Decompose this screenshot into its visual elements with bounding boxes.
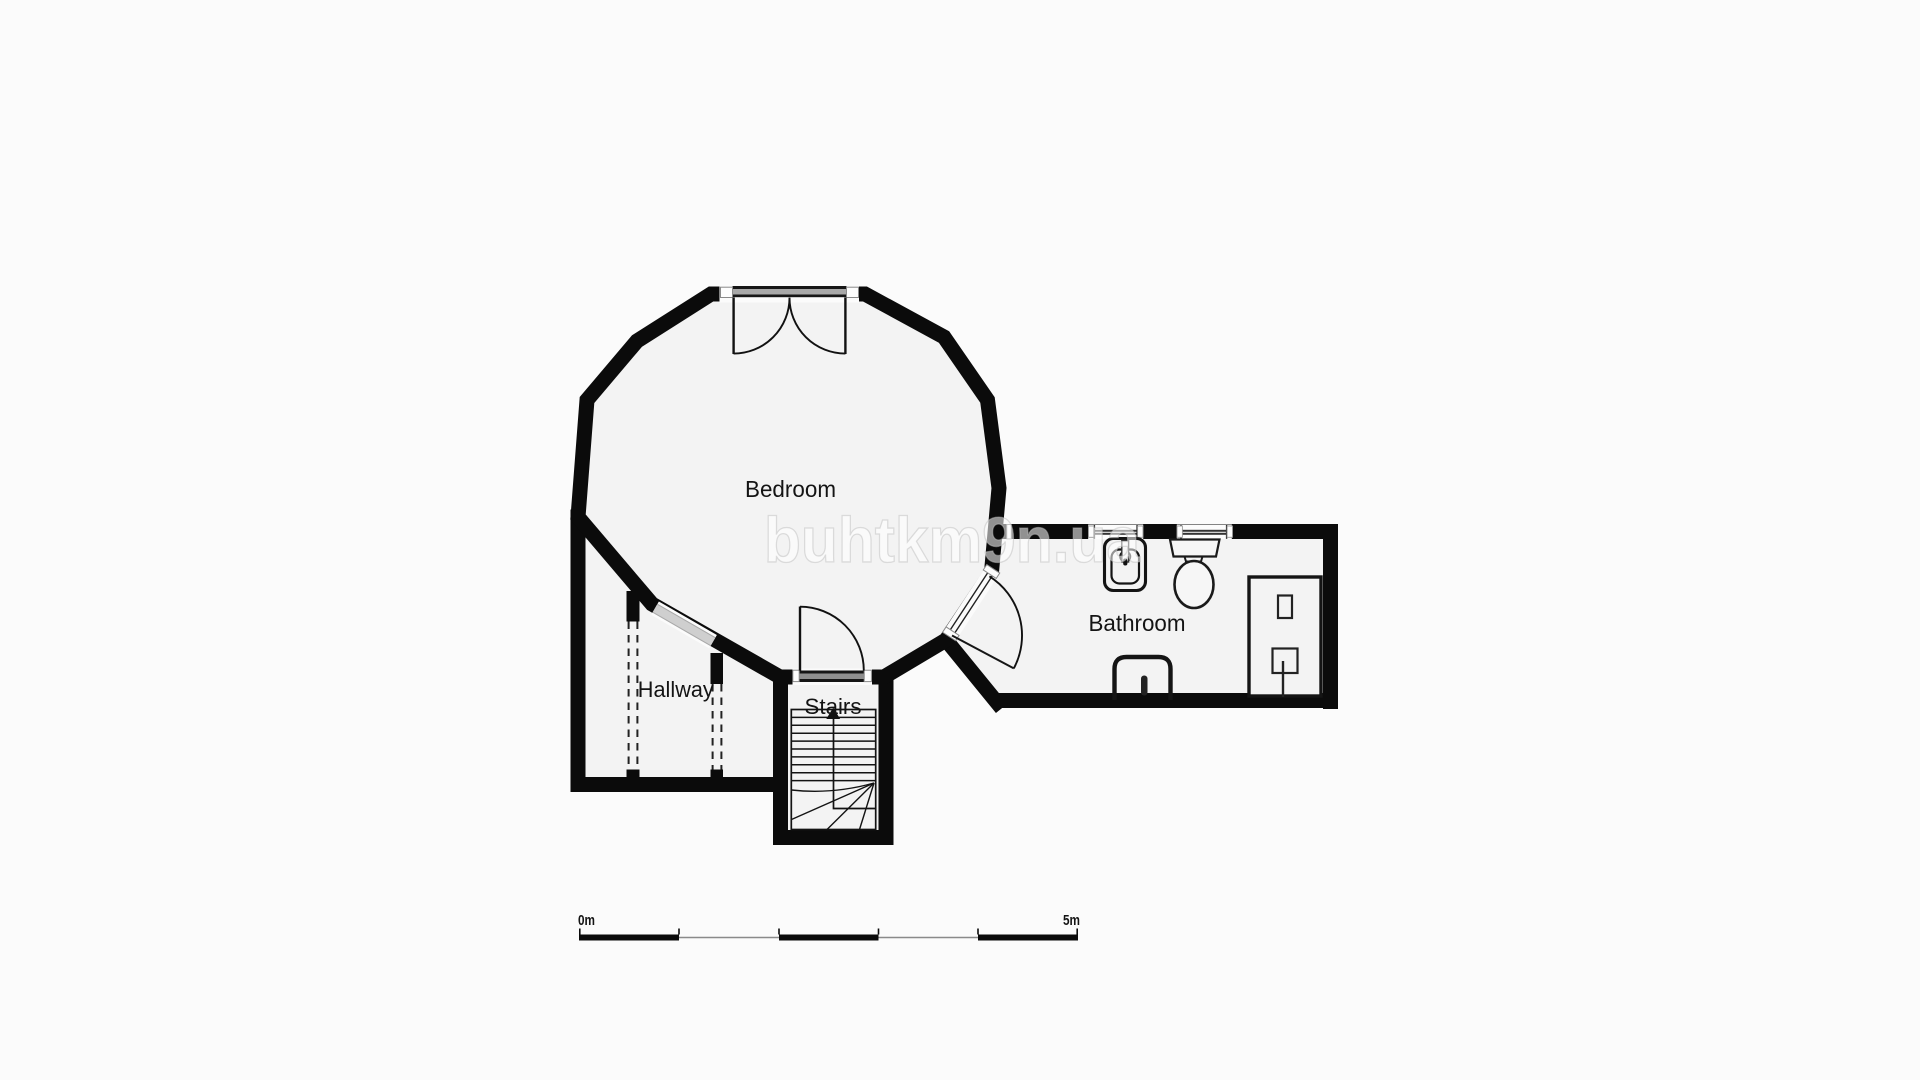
svg-text:Hallway: Hallway [638, 677, 715, 702]
svg-text:buhtkm9n.ua: buhtkm9n.ua [764, 504, 1140, 576]
svg-text:Bedroom: Bedroom [745, 476, 836, 502]
svg-text:Stairs: Stairs [805, 694, 862, 719]
svg-text:0m: 0m [578, 913, 595, 929]
svg-text:Bathroom: Bathroom [1089, 610, 1186, 636]
svg-text:5m: 5m [1063, 913, 1080, 929]
